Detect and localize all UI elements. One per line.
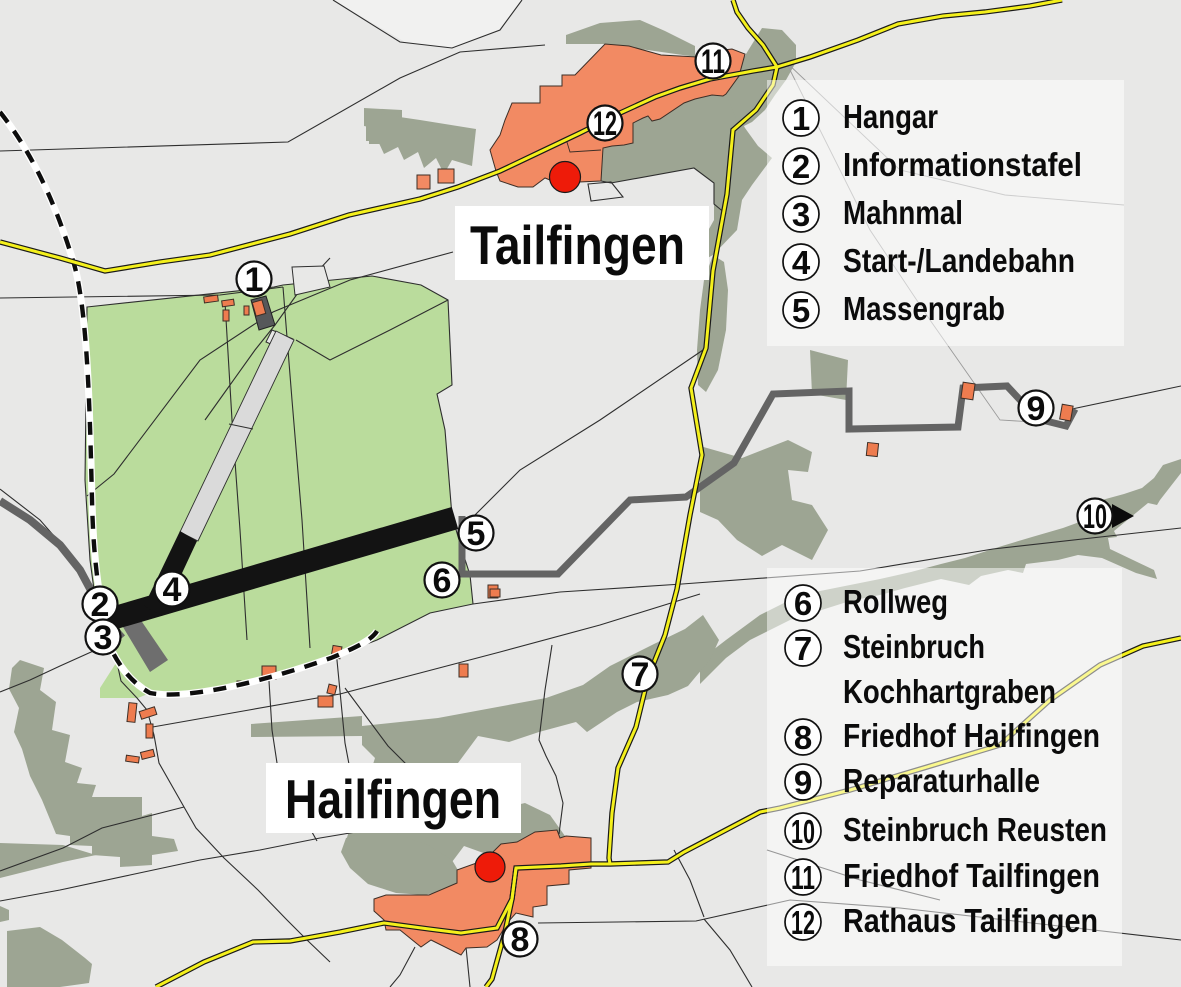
svg-text:6: 6 <box>794 585 812 622</box>
svg-text:10: 10 <box>791 813 815 850</box>
svg-text:Hangar: Hangar <box>843 98 938 135</box>
svg-text:4: 4 <box>163 571 182 609</box>
svg-text:Rollweg: Rollweg <box>843 583 948 620</box>
svg-text:3: 3 <box>94 619 113 657</box>
svg-text:8: 8 <box>511 921 530 959</box>
svg-text:11: 11 <box>791 859 815 896</box>
svg-text:Steinbruch: Steinbruch <box>843 628 985 665</box>
svg-text:5: 5 <box>467 515 486 553</box>
svg-text:Steinbruch Reusten: Steinbruch Reusten <box>843 811 1107 848</box>
svg-text:12: 12 <box>593 105 617 143</box>
svg-text:Massengrab: Massengrab <box>843 290 1005 327</box>
svg-text:Friedhof Hailfingen: Friedhof Hailfingen <box>843 717 1100 754</box>
svg-text:9: 9 <box>794 764 812 801</box>
svg-text:Reparaturhalle: Reparaturhalle <box>843 762 1040 799</box>
svg-text:Hailfingen: Hailfingen <box>285 768 501 830</box>
svg-text:7: 7 <box>794 630 812 667</box>
svg-text:Kochhartgraben: Kochhartgraben <box>843 673 1056 710</box>
svg-text:2: 2 <box>792 148 810 185</box>
svg-text:Friedhof Tailfingen: Friedhof Tailfingen <box>843 857 1100 894</box>
svg-text:9: 9 <box>1027 390 1046 428</box>
svg-text:1: 1 <box>245 261 264 299</box>
svg-text:5: 5 <box>792 292 810 329</box>
svg-text:Start-/Landebahn: Start-/Landebahn <box>843 242 1075 279</box>
svg-text:6: 6 <box>433 562 452 600</box>
svg-text:Informationstafel: Informationstafel <box>843 146 1082 183</box>
svg-text:Mahnmal: Mahnmal <box>843 194 963 231</box>
svg-text:10: 10 <box>1083 498 1107 536</box>
svg-text:Tailfingen: Tailfingen <box>470 214 685 276</box>
svg-text:12: 12 <box>791 904 815 941</box>
svg-text:7: 7 <box>631 656 650 694</box>
svg-text:3: 3 <box>792 196 810 233</box>
svg-text:11: 11 <box>701 43 725 81</box>
svg-text:Rathaus Tailfingen: Rathaus Tailfingen <box>843 902 1098 939</box>
svg-text:8: 8 <box>794 719 812 756</box>
svg-text:1: 1 <box>792 100 810 137</box>
svg-text:4: 4 <box>792 244 811 281</box>
